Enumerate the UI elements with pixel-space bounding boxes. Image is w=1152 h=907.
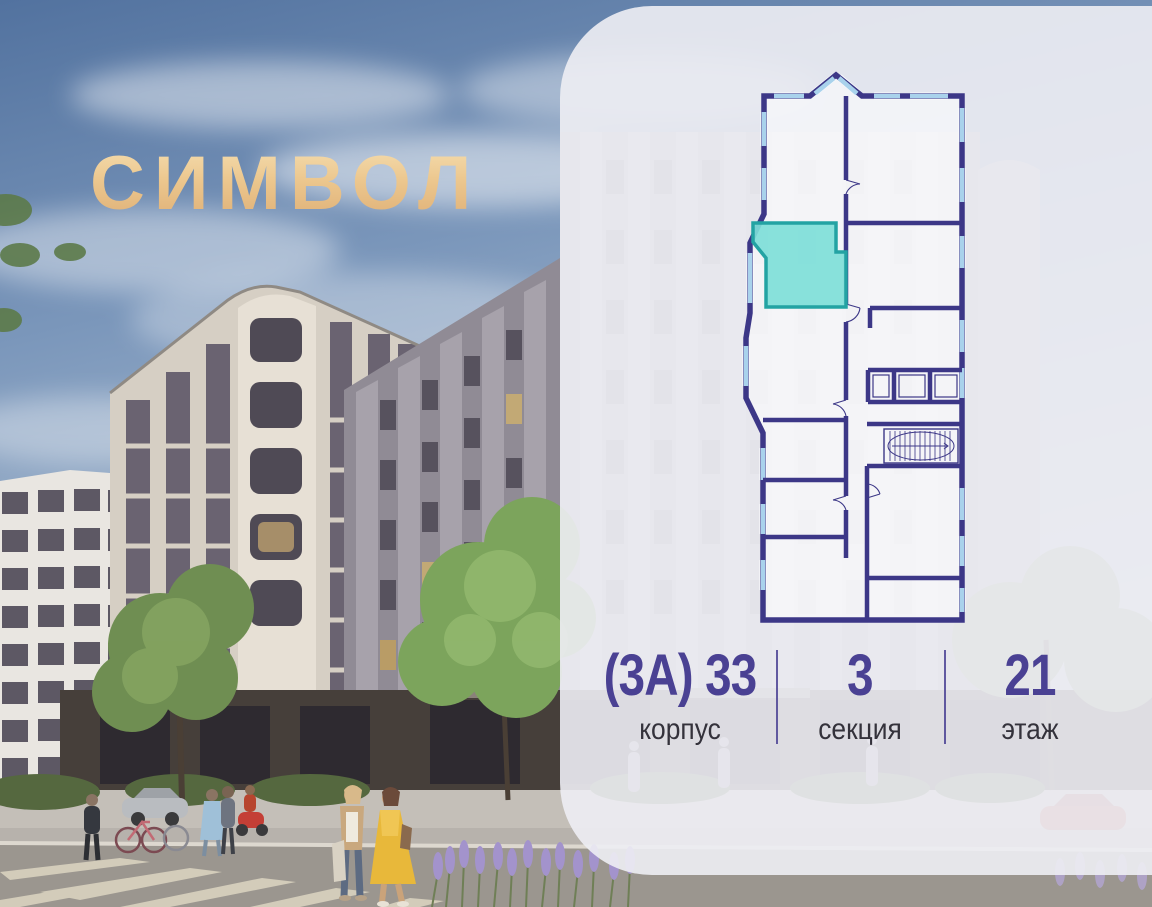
listing-card: СИМВОЛ xyxy=(0,0,1152,907)
floor-info: 21 этаж xyxy=(958,646,1102,747)
divider xyxy=(944,650,946,744)
divider xyxy=(776,650,778,744)
unit-info: (3А) 33 корпус 3 секция 21 этаж xyxy=(560,638,1120,768)
building-info: (3А) 33 корпус xyxy=(576,646,784,747)
building-label: корпус xyxy=(588,713,771,747)
section-number: 3 xyxy=(809,646,911,705)
section-info: 3 секция xyxy=(798,646,922,747)
floor-label: этаж xyxy=(967,713,1094,747)
section-label: секция xyxy=(805,713,914,747)
floor-plan xyxy=(742,68,972,628)
selected-apartment-highlight[interactable] xyxy=(753,223,846,307)
building-number: (3А) 33 xyxy=(595,646,766,705)
info-panel: (3А) 33 корпус 3 секция 21 этаж xyxy=(560,6,1152,875)
brand-logo: СИМВОЛ xyxy=(90,146,560,222)
floor-number: 21 xyxy=(971,646,1089,705)
